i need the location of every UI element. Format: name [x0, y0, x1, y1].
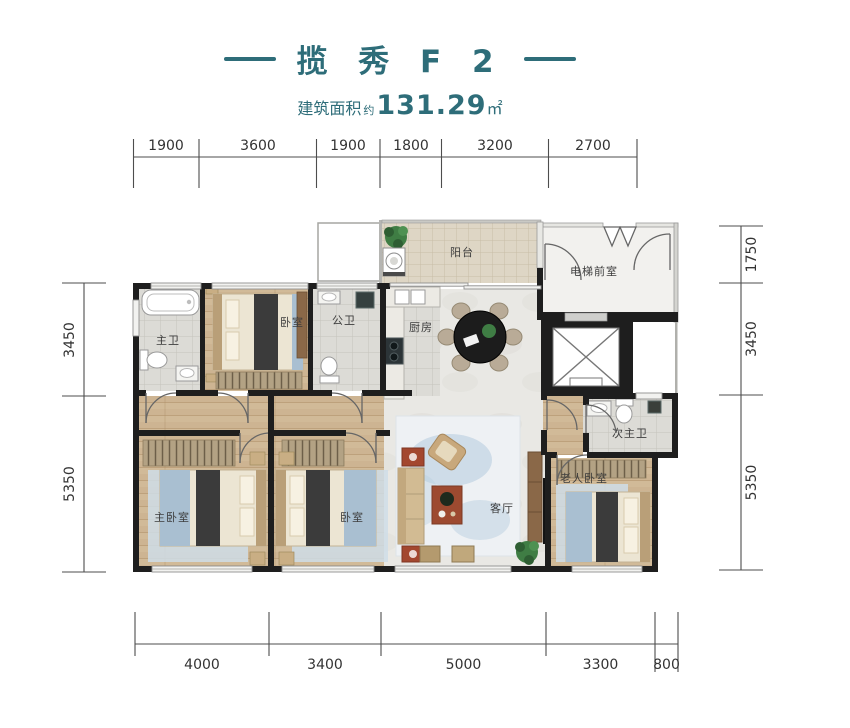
balcony-slider-leaf2	[464, 286, 541, 289]
lobby-right-wall	[674, 223, 678, 322]
dim-bottom-4: 3300	[583, 657, 619, 673]
toilet-icon-public-bath	[320, 357, 339, 383]
dim-right-2: 3450	[744, 321, 760, 357]
toilet-icon-secondary-bath	[616, 399, 633, 423]
label-master-bedroom: 主卧室	[154, 510, 190, 524]
dim-top-2: 3600	[240, 138, 276, 154]
dim-top-3: 1900	[330, 138, 366, 154]
floor-plan-drawing: 阳台 电梯前室 主卫 卧室 公卫 厨房 主卧室 卧室 客厅 老人卧室 次主卫	[0, 0, 850, 728]
dim-right	[719, 226, 763, 570]
ottoman-left	[420, 546, 440, 562]
exterior-line-right	[675, 322, 678, 393]
label-master-bath: 主卫	[156, 334, 180, 347]
dim-top-5: 3200	[477, 138, 513, 154]
sink-icon-master-bath	[176, 366, 198, 381]
label-bedroom-bottom: 卧室	[340, 510, 364, 524]
dim-top-4: 1800	[393, 138, 429, 154]
dim-top-1: 1900	[148, 138, 184, 154]
wardrobe-master-bedroom	[143, 440, 235, 466]
elevator-door	[565, 313, 607, 321]
dim-top-6: 2700	[575, 138, 611, 154]
bathtub-icon	[142, 290, 199, 315]
label-elderly-bedroom: 老人卧室	[560, 471, 608, 485]
dim-left-1: 3450	[62, 322, 78, 358]
ottoman-right	[452, 546, 474, 562]
shower-icon-public-bath	[356, 292, 374, 308]
label-secondary-bath: 次主卫	[612, 426, 648, 440]
shower-icon-secondary-bath	[648, 401, 661, 413]
dim-right-1: 1750	[744, 237, 760, 273]
dim-bottom-1: 4000	[184, 657, 220, 673]
sink-icon-public-bath	[318, 291, 340, 304]
lobby-left-upper-wall	[537, 222, 543, 268]
label-public-bath: 公卫	[332, 314, 356, 327]
label-bedroom-top: 卧室	[280, 315, 304, 329]
elevator-shaft	[541, 316, 633, 396]
dim-bottom-3: 5000	[446, 657, 482, 673]
wardrobe-top-bedroom	[216, 372, 302, 389]
washing-machine-icon	[383, 248, 405, 276]
lobby-top-wall-right	[636, 223, 678, 227]
dim-top	[134, 139, 638, 188]
balcony-slider-leaf1	[390, 283, 468, 286]
label-elevator-lobby: 电梯前室	[570, 264, 618, 278]
label-balcony: 阳台	[450, 245, 474, 259]
floorplan-page: 揽 秀 F 2 建筑面积约131.29㎡	[0, 0, 850, 728]
sofa	[398, 468, 424, 544]
label-living-room: 客厅	[490, 501, 514, 515]
dim-bottom-5: 800	[653, 657, 680, 673]
dim-right-3: 5350	[744, 465, 760, 501]
balcony-left-wall	[379, 220, 382, 283]
bed-top-bedroom	[206, 286, 303, 382]
equipment-platform	[318, 223, 380, 281]
toilet-icon-master-bath	[140, 350, 167, 370]
coffee-table	[432, 486, 462, 524]
lobby-top-wall-left	[543, 223, 603, 227]
bed-elderly-bedroom	[566, 492, 650, 562]
label-kitchen: 厨房	[409, 321, 433, 334]
dim-bottom-2: 3400	[307, 657, 343, 673]
balcony-rail	[382, 220, 541, 223]
dim-left-2: 5350	[62, 466, 78, 502]
